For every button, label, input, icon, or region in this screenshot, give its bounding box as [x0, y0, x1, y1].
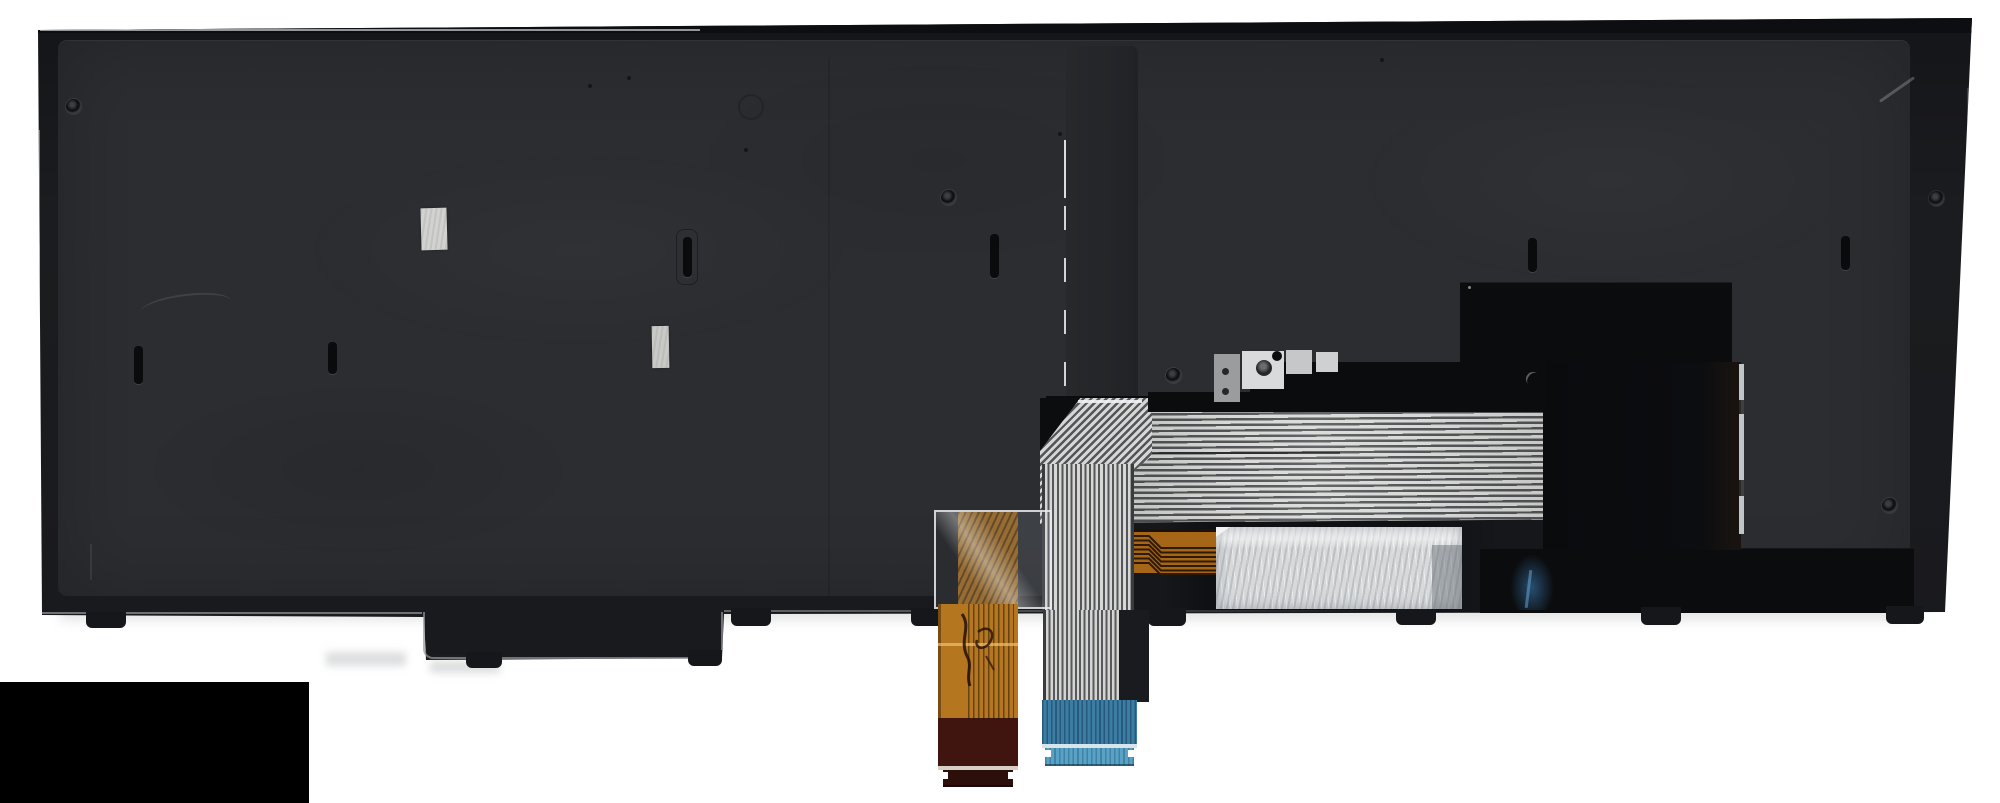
ffc-blue-stiffener — [1042, 700, 1137, 745]
dust-speck — [1058, 132, 1062, 136]
panel-faint-seam — [828, 58, 830, 598]
mounting-tab — [1641, 607, 1681, 625]
fpc-connector-tip — [943, 770, 1013, 787]
hook-slot — [328, 342, 337, 374]
mounting-tab — [731, 608, 771, 626]
handwritten-mark — [948, 606, 1012, 702]
hook-slot — [1841, 236, 1850, 270]
rib-edge-highlight — [1064, 140, 1066, 198]
ffc-cable-lower — [1043, 610, 1119, 702]
connector-notch — [1045, 750, 1051, 757]
screw-hole — [66, 99, 81, 114]
connector-notch — [1128, 750, 1134, 757]
metal-bracket — [1214, 350, 1338, 402]
foil-sticker — [652, 326, 670, 368]
screw-hole — [1166, 368, 1181, 383]
bracket-pad — [1316, 352, 1338, 372]
censor-rectangle — [0, 682, 309, 803]
dust-speck — [588, 84, 592, 88]
screw-hole — [1882, 498, 1897, 513]
panel-left-edge-highlight — [36, 130, 40, 614]
bracket-hole — [1222, 388, 1229, 395]
hook-slot — [134, 346, 143, 384]
hook-slot — [990, 234, 999, 278]
bracket-plate — [1214, 354, 1240, 402]
dust-speck — [744, 148, 748, 152]
dust-speck-light — [1468, 286, 1471, 289]
backlight-film-upper-flap — [1460, 282, 1732, 368]
ffc-cable-black-edge — [1119, 610, 1149, 702]
foil-sticker — [420, 208, 447, 251]
ffc-cable-vertical — [1042, 464, 1134, 612]
mounting-tab — [688, 650, 722, 666]
fpc-stiffener-maroon — [938, 718, 1018, 768]
dust-speck — [627, 76, 631, 80]
film-edge-white-dash — [1078, 400, 1142, 403]
shadow-smudge — [326, 652, 406, 666]
mounting-tab — [86, 612, 126, 628]
smudge-ring — [738, 94, 764, 120]
panel-right-edge-highlight — [1967, 88, 1970, 568]
frame-corner-line — [90, 544, 92, 580]
backlight-film-right-block — [1543, 362, 1741, 550]
sticker-shaded-edge — [1432, 545, 1462, 609]
ffc-band-sheen — [1133, 402, 1543, 523]
bracket-pad — [1286, 350, 1312, 374]
screw-hole — [1929, 191, 1944, 206]
silver-hologram-sticker — [1216, 527, 1462, 609]
photo-stage — [0, 0, 2000, 803]
translucent-film — [934, 510, 1052, 609]
hook-slot — [1528, 238, 1537, 272]
panel-top-highlight — [40, 29, 700, 31]
mounting-tab — [466, 652, 502, 668]
bracket-hole — [1222, 368, 1229, 375]
fpc-zigzag-trace-window — [1133, 529, 1217, 573]
screw-hole — [941, 190, 956, 205]
blue-reflection — [1510, 554, 1554, 610]
mounting-tab — [1886, 606, 1924, 624]
film-edge-highlight — [1739, 364, 1744, 534]
mounting-tab — [1148, 608, 1186, 626]
ffc-cable-horizontal-band — [1133, 402, 1543, 523]
connector-notch — [1008, 772, 1013, 779]
connector-notch — [943, 772, 948, 779]
dust-speck — [1380, 58, 1384, 62]
ffc-stiffener-tip — [1045, 748, 1134, 766]
bracket-screw-dark — [1272, 351, 1282, 361]
ffc-band-seam — [1150, 452, 1340, 454]
zigzag-traces — [1133, 532, 1217, 576]
center-stiffener-rib — [1066, 46, 1138, 404]
film-reflection-streak — [936, 512, 1050, 607]
hook-slot — [683, 237, 692, 277]
mounting-tab — [1396, 607, 1436, 625]
bracket-screw — [1256, 360, 1272, 376]
